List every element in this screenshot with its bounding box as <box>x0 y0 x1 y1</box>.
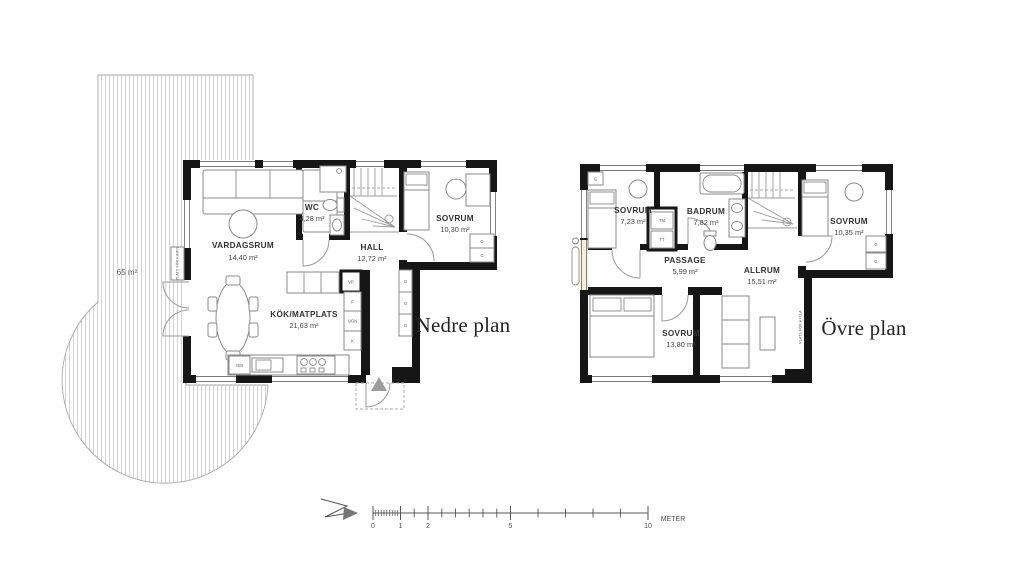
scale-tick-0: 0 <box>371 523 375 530</box>
room-area-wc: 4,28 m² <box>299 214 325 223</box>
room-area-sovrum3: 13,80 m² <box>666 340 696 349</box>
scale-tick-1: 1 <box>399 523 403 530</box>
room-area-sovrum-nedre: 10,30 m² <box>440 225 470 234</box>
room-area-hall: 12,72 m² <box>357 254 387 263</box>
room-area-allrum: 15,51 m² <box>747 277 777 286</box>
room-name-kok: KÖK/MATPLATS <box>270 309 338 319</box>
room-name-allrum: ALLRUM <box>744 266 780 275</box>
dryer-label: TT <box>659 237 665 242</box>
scale-unit: METER <box>661 516 686 523</box>
scale-bar: 0 1 2 5 10 METER <box>371 506 685 530</box>
room-area-sovrum2: 10,35 m² <box>834 228 864 237</box>
chair <box>845 183 863 201</box>
bed <box>404 172 429 230</box>
sink-counter <box>729 199 745 237</box>
wardrobe-label: G <box>874 242 877 247</box>
room-name-sovrum-nedre: SOVRUM <box>436 214 474 223</box>
laundry-closet <box>648 208 676 250</box>
chair <box>629 180 647 198</box>
lower-floor-plan <box>62 75 497 483</box>
scale-tick-5: 5 <box>509 523 513 530</box>
scale-tick-10: 10 <box>644 523 652 530</box>
room-name-wc: WC <box>305 203 319 212</box>
oven-label: UGN <box>348 319 357 324</box>
sofa <box>722 296 749 368</box>
wardrobe-label: G <box>404 279 407 284</box>
upper-plan-title: Övre plan <box>821 316 906 340</box>
ladder-icon <box>572 238 579 285</box>
fireplace-note: PLATS FÖR KAMIN <box>176 247 180 281</box>
freezer-label: F <box>351 300 354 305</box>
floor-plan-drawing: 0 1 2 5 10 METER 65 m² VARDAGSRUM 14,40 … <box>0 0 1024 577</box>
room-area-badrum: 7,82 m² <box>693 218 719 227</box>
wardrobe-label: G <box>594 177 597 182</box>
shelf-note: PLATS FÖR HYLLA <box>799 310 803 344</box>
double-bed <box>590 295 654 357</box>
room-name-sovrum2: SOVRUM <box>830 217 868 226</box>
dishwasher-label: DM <box>236 363 243 368</box>
upper-floor-plan <box>572 164 893 383</box>
scale-tick-2: 2 <box>426 523 430 530</box>
north-arrow <box>321 499 358 520</box>
desk <box>466 174 490 206</box>
room-area-vardagsrum: 14,40 m² <box>228 253 258 262</box>
room-name-passage: PASSAGE <box>664 256 706 265</box>
room-area-passage: 5,99 m² <box>672 267 698 276</box>
round-table <box>229 210 257 238</box>
wardrobe-label: G <box>404 301 407 306</box>
coffee-table <box>760 317 775 350</box>
room-name-sovrum1: SOVRUM <box>614 206 652 215</box>
floor-plan-sheet: 0 1 2 5 10 METER 65 m² VARDAGSRUM 14,40 … <box>0 0 1024 577</box>
room-name-badrum: BADRUM <box>687 207 725 216</box>
room-area-kok: 21,63 m² <box>289 321 319 330</box>
wardrobe-label: G <box>480 253 483 258</box>
deck-area-label: 65 m² <box>117 268 138 277</box>
utility-label: VP <box>348 280 354 285</box>
lower-plan-title: Nedre plan <box>416 313 511 337</box>
toilet <box>337 198 344 212</box>
fridge-label: K <box>351 339 354 344</box>
bed <box>588 190 616 248</box>
room-name-sovrum3: SOVRUM <box>662 329 700 338</box>
highlighted-window <box>580 240 588 290</box>
wardrobe-label: G <box>404 323 407 328</box>
washer-label: TM <box>659 218 666 223</box>
room-name-vardagsrum: VARDAGSRUM <box>212 241 274 250</box>
room-area-sovrum1: 7,23 m² <box>620 217 646 226</box>
room-name-hall: HALL <box>360 243 383 252</box>
chair <box>446 179 466 199</box>
wardrobe-label: G <box>874 259 877 264</box>
shower <box>320 166 346 192</box>
bedroom3-furniture <box>590 295 654 357</box>
bed <box>802 180 828 236</box>
wardrobe-label: G <box>480 239 483 244</box>
